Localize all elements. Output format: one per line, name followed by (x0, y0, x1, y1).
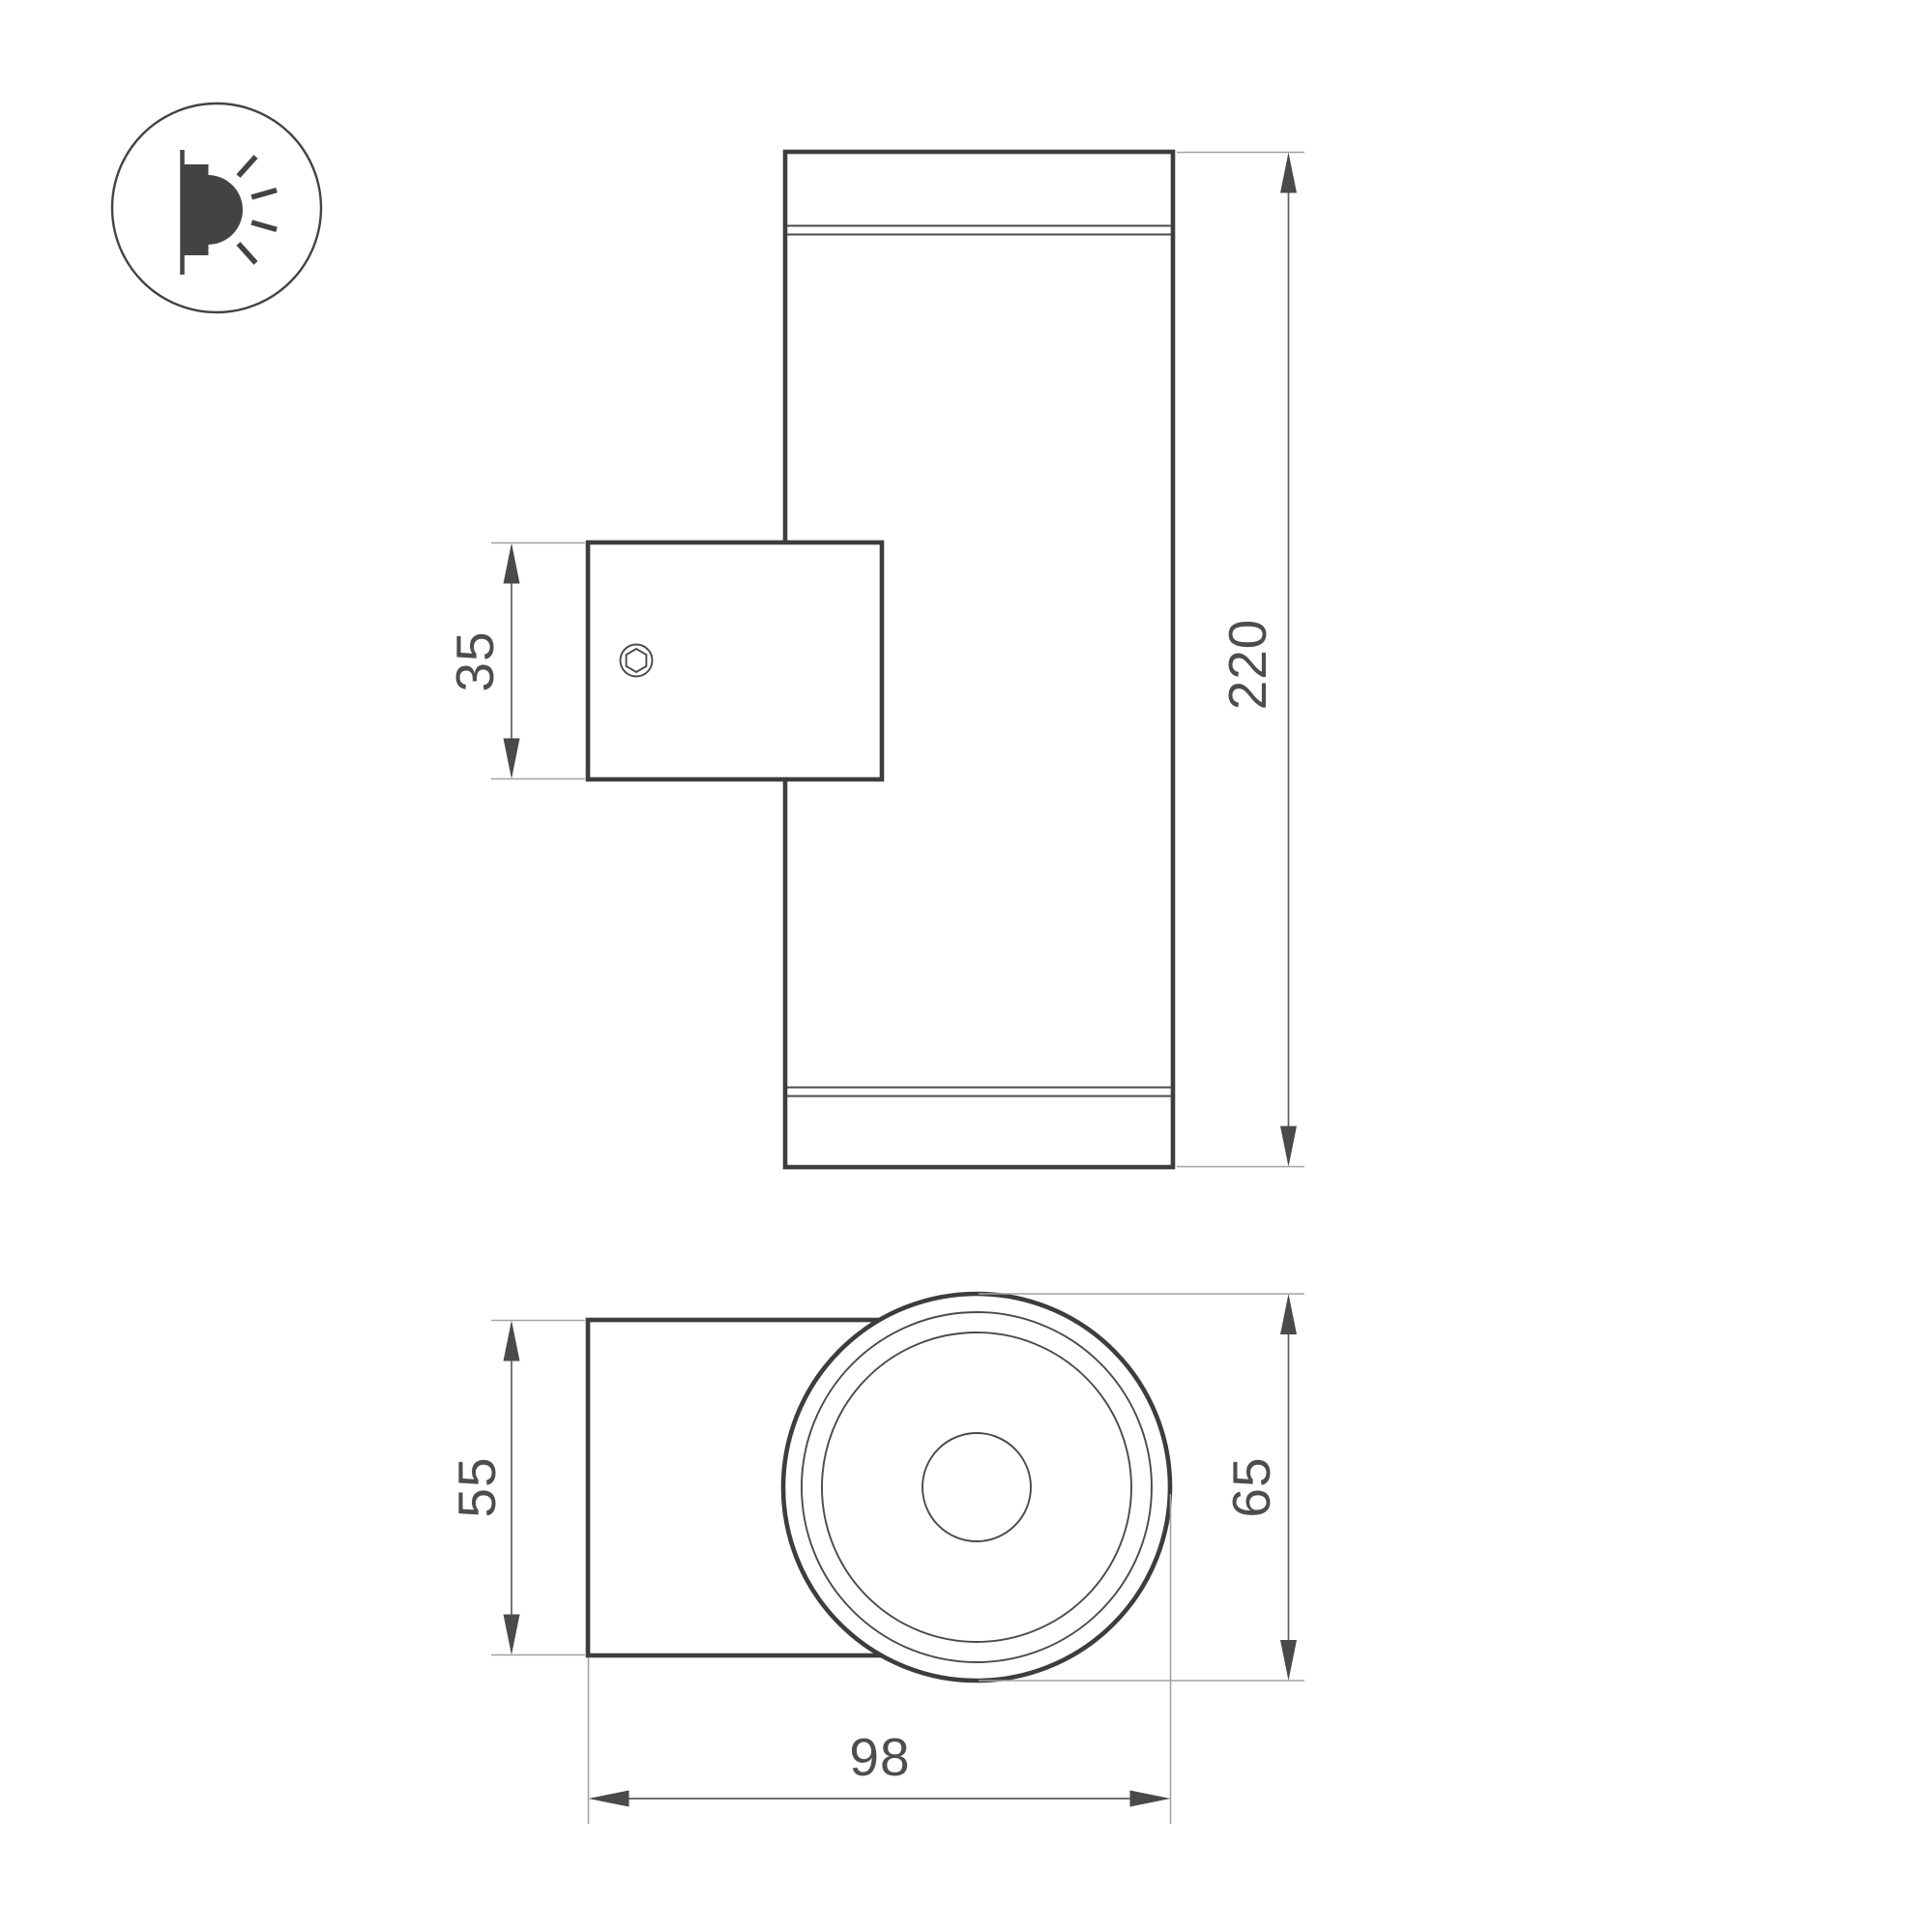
arrow-down (504, 739, 520, 779)
icon-ray (251, 222, 277, 229)
mount-bracket (588, 542, 882, 779)
wall-light-side-emission-icon (112, 103, 321, 312)
arrow-up (1280, 153, 1297, 193)
icon-ray (239, 157, 256, 176)
icon-light-rays (239, 157, 278, 263)
plan-view: 55 65 98 (447, 1294, 1304, 1824)
dimension-label-55: 55 (447, 1456, 507, 1517)
dimension-label-220: 220 (1217, 619, 1277, 711)
side-view: 35 220 (445, 152, 1304, 1167)
icon-lamp-body (185, 164, 209, 255)
dimension-total-height: 220 (1177, 153, 1304, 1167)
technical-dimension-drawing: 35 220 (0, 0, 1932, 1932)
arrow-down (504, 1615, 520, 1655)
icon-ray (239, 244, 256, 263)
arrow-right (1130, 1791, 1171, 1807)
icon-light-dome (208, 175, 243, 245)
dimension-bracket-depth: 55 (447, 1321, 585, 1655)
arrow-down (1280, 1127, 1297, 1167)
dimension-label-98: 98 (849, 1727, 910, 1787)
dimension-label-65: 65 (1221, 1456, 1281, 1517)
arrow-left (589, 1791, 629, 1807)
arrow-up (1280, 1294, 1297, 1334)
lamp-face-outer (783, 1294, 1170, 1681)
arrow-down (1280, 1640, 1297, 1681)
dimension-drawing-page: 35 220 (0, 0, 1932, 1932)
arrow-up (504, 1321, 520, 1361)
dimension-label-35: 35 (445, 630, 505, 691)
dimension-bracket-height: 35 (445, 543, 585, 779)
arrow-up (504, 543, 520, 584)
icon-ray (251, 190, 277, 197)
